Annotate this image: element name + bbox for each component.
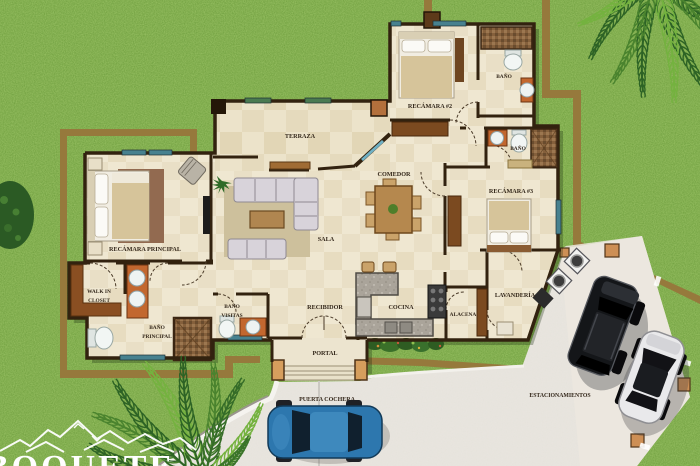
svg-text:PRINCIPAL: PRINCIPAL [142,334,172,340]
svg-text:ESTACIONAMIENTOS: ESTACIONAMIENTOS [529,393,590,399]
svg-text:BAÑO: BAÑO [224,302,240,310]
svg-text:VISITAS: VISITAS [221,313,242,319]
svg-text:SALA: SALA [318,236,335,243]
svg-text:TERRAZA: TERRAZA [285,133,316,140]
svg-text:LAVANDERÍA: LAVANDERÍA [495,291,536,299]
svg-text:RECIBIDOR: RECIBIDOR [307,304,343,311]
svg-text:WALK IN: WALK IN [87,289,111,295]
svg-text:BAÑO: BAÑO [510,144,526,152]
svg-text:CLOSET: CLOSET [88,298,110,304]
svg-text:RECÁMARA #2: RECÁMARA #2 [408,102,452,110]
svg-text:BOQUETE: BOQUETE [0,449,175,466]
svg-text:RECÁMARA #3: RECÁMARA #3 [489,187,533,195]
svg-text:RECÁMARA PRINCIPAL: RECÁMARA PRINCIPAL [109,245,181,253]
svg-text:COMEDOR: COMEDOR [378,171,412,178]
svg-text:ALACENA: ALACENA [450,312,477,318]
svg-text:BAÑO: BAÑO [496,72,512,80]
svg-text:COCINA: COCINA [388,304,414,311]
svg-text:PORTAL: PORTAL [312,350,337,357]
svg-text:BAÑO: BAÑO [149,323,165,331]
